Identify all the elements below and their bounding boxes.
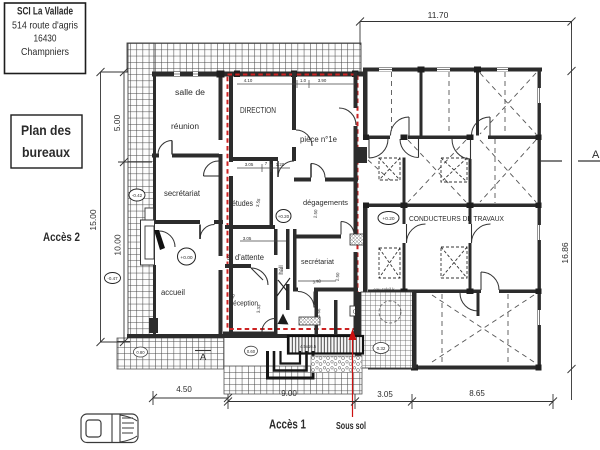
- svg-text:+0.20: +0.20: [278, 214, 290, 219]
- svg-text:pièce n°1e: pièce n°1e: [300, 135, 337, 144]
- svg-text:5.00: 5.00: [112, 114, 122, 131]
- svg-text:A: A: [200, 352, 207, 363]
- svg-text:4.10: 4.10: [244, 78, 253, 83]
- svg-text:dégagements: dégagements: [303, 198, 348, 207]
- svg-text:études: études: [232, 199, 253, 208]
- svg-text:3.05: 3.05: [243, 236, 252, 241]
- svg-text:Plan des: Plan des: [21, 122, 71, 138]
- svg-text:SCI La Vallade: SCI La Vallade: [17, 6, 73, 18]
- svg-text:+0.00: +0.00: [180, 255, 192, 261]
- svg-text:514 route d'agris: 514 route d'agris: [12, 20, 78, 32]
- svg-text:8.65: 8.65: [469, 389, 485, 398]
- svg-text:DIRECTION: DIRECTION: [240, 105, 276, 115]
- svg-text:accueil: accueil: [161, 288, 185, 297]
- svg-text:Champniers: Champniers: [21, 46, 69, 58]
- svg-text:-0.47: -0.47: [107, 276, 118, 281]
- svg-text:secrétariat: secrétariat: [164, 189, 201, 198]
- svg-text:3.05: 3.05: [377, 390, 393, 399]
- svg-text:10.00: 10.00: [113, 234, 123, 256]
- svg-text:bureaux: bureaux: [22, 144, 70, 160]
- svg-text:Sous sol: Sous sol: [336, 421, 366, 432]
- svg-text:Accès 2: Accès 2: [43, 230, 80, 244]
- svg-text:A: A: [592, 149, 600, 161]
- svg-text:1.20: 1.20: [276, 162, 285, 167]
- svg-text:secrétariat: secrétariat: [301, 257, 335, 266]
- svg-text:3.05: 3.05: [245, 162, 254, 167]
- svg-text:1.0: 1.0: [300, 78, 307, 83]
- svg-text:9.00: 9.00: [281, 389, 297, 398]
- svg-text:11.70: 11.70: [428, 10, 449, 20]
- svg-text:-0.42: -0.42: [132, 193, 143, 198]
- svg-text:15.00: 15.00: [88, 209, 98, 231]
- svg-text:+0.20: +0.20: [382, 216, 394, 222]
- svg-text:hall: hall: [279, 265, 285, 274]
- svg-text:3.55: 3.55: [255, 198, 262, 208]
- svg-text:Accès 1: Accès 1: [269, 418, 306, 432]
- svg-text:CONDUCTEURS DE TRAVAUX: CONDUCTEURS DE TRAVAUX: [409, 216, 504, 223]
- svg-text:7: 7: [265, 161, 268, 166]
- svg-text:3.90: 3.90: [312, 278, 322, 284]
- svg-text:0.32: 0.32: [377, 346, 386, 351]
- svg-text:eau soleil k: eau soleil k: [374, 287, 396, 292]
- svg-text:2.50: 2.50: [335, 272, 341, 282]
- svg-text:réception: réception: [231, 299, 258, 308]
- svg-text:1.66: 1.66: [316, 308, 322, 318]
- svg-text:s. d'attente: s. d'attente: [227, 253, 264, 262]
- svg-text:3.90: 3.90: [318, 78, 327, 83]
- svg-text:4.5x16.5: 4.5x16.5: [300, 344, 317, 349]
- svg-text:3.33: 3.33: [256, 304, 262, 314]
- svg-text:16.86: 16.86: [560, 242, 570, 264]
- svg-text:salle de: salle de: [175, 88, 206, 97]
- svg-text:2.50: 2.50: [313, 209, 319, 219]
- svg-text:réunion: réunion: [171, 122, 199, 131]
- svg-text:0.80: 0.80: [136, 350, 145, 355]
- svg-text:0.60: 0.60: [247, 349, 256, 354]
- svg-text:4.50: 4.50: [176, 385, 192, 394]
- svg-text:16430: 16430: [34, 33, 57, 45]
